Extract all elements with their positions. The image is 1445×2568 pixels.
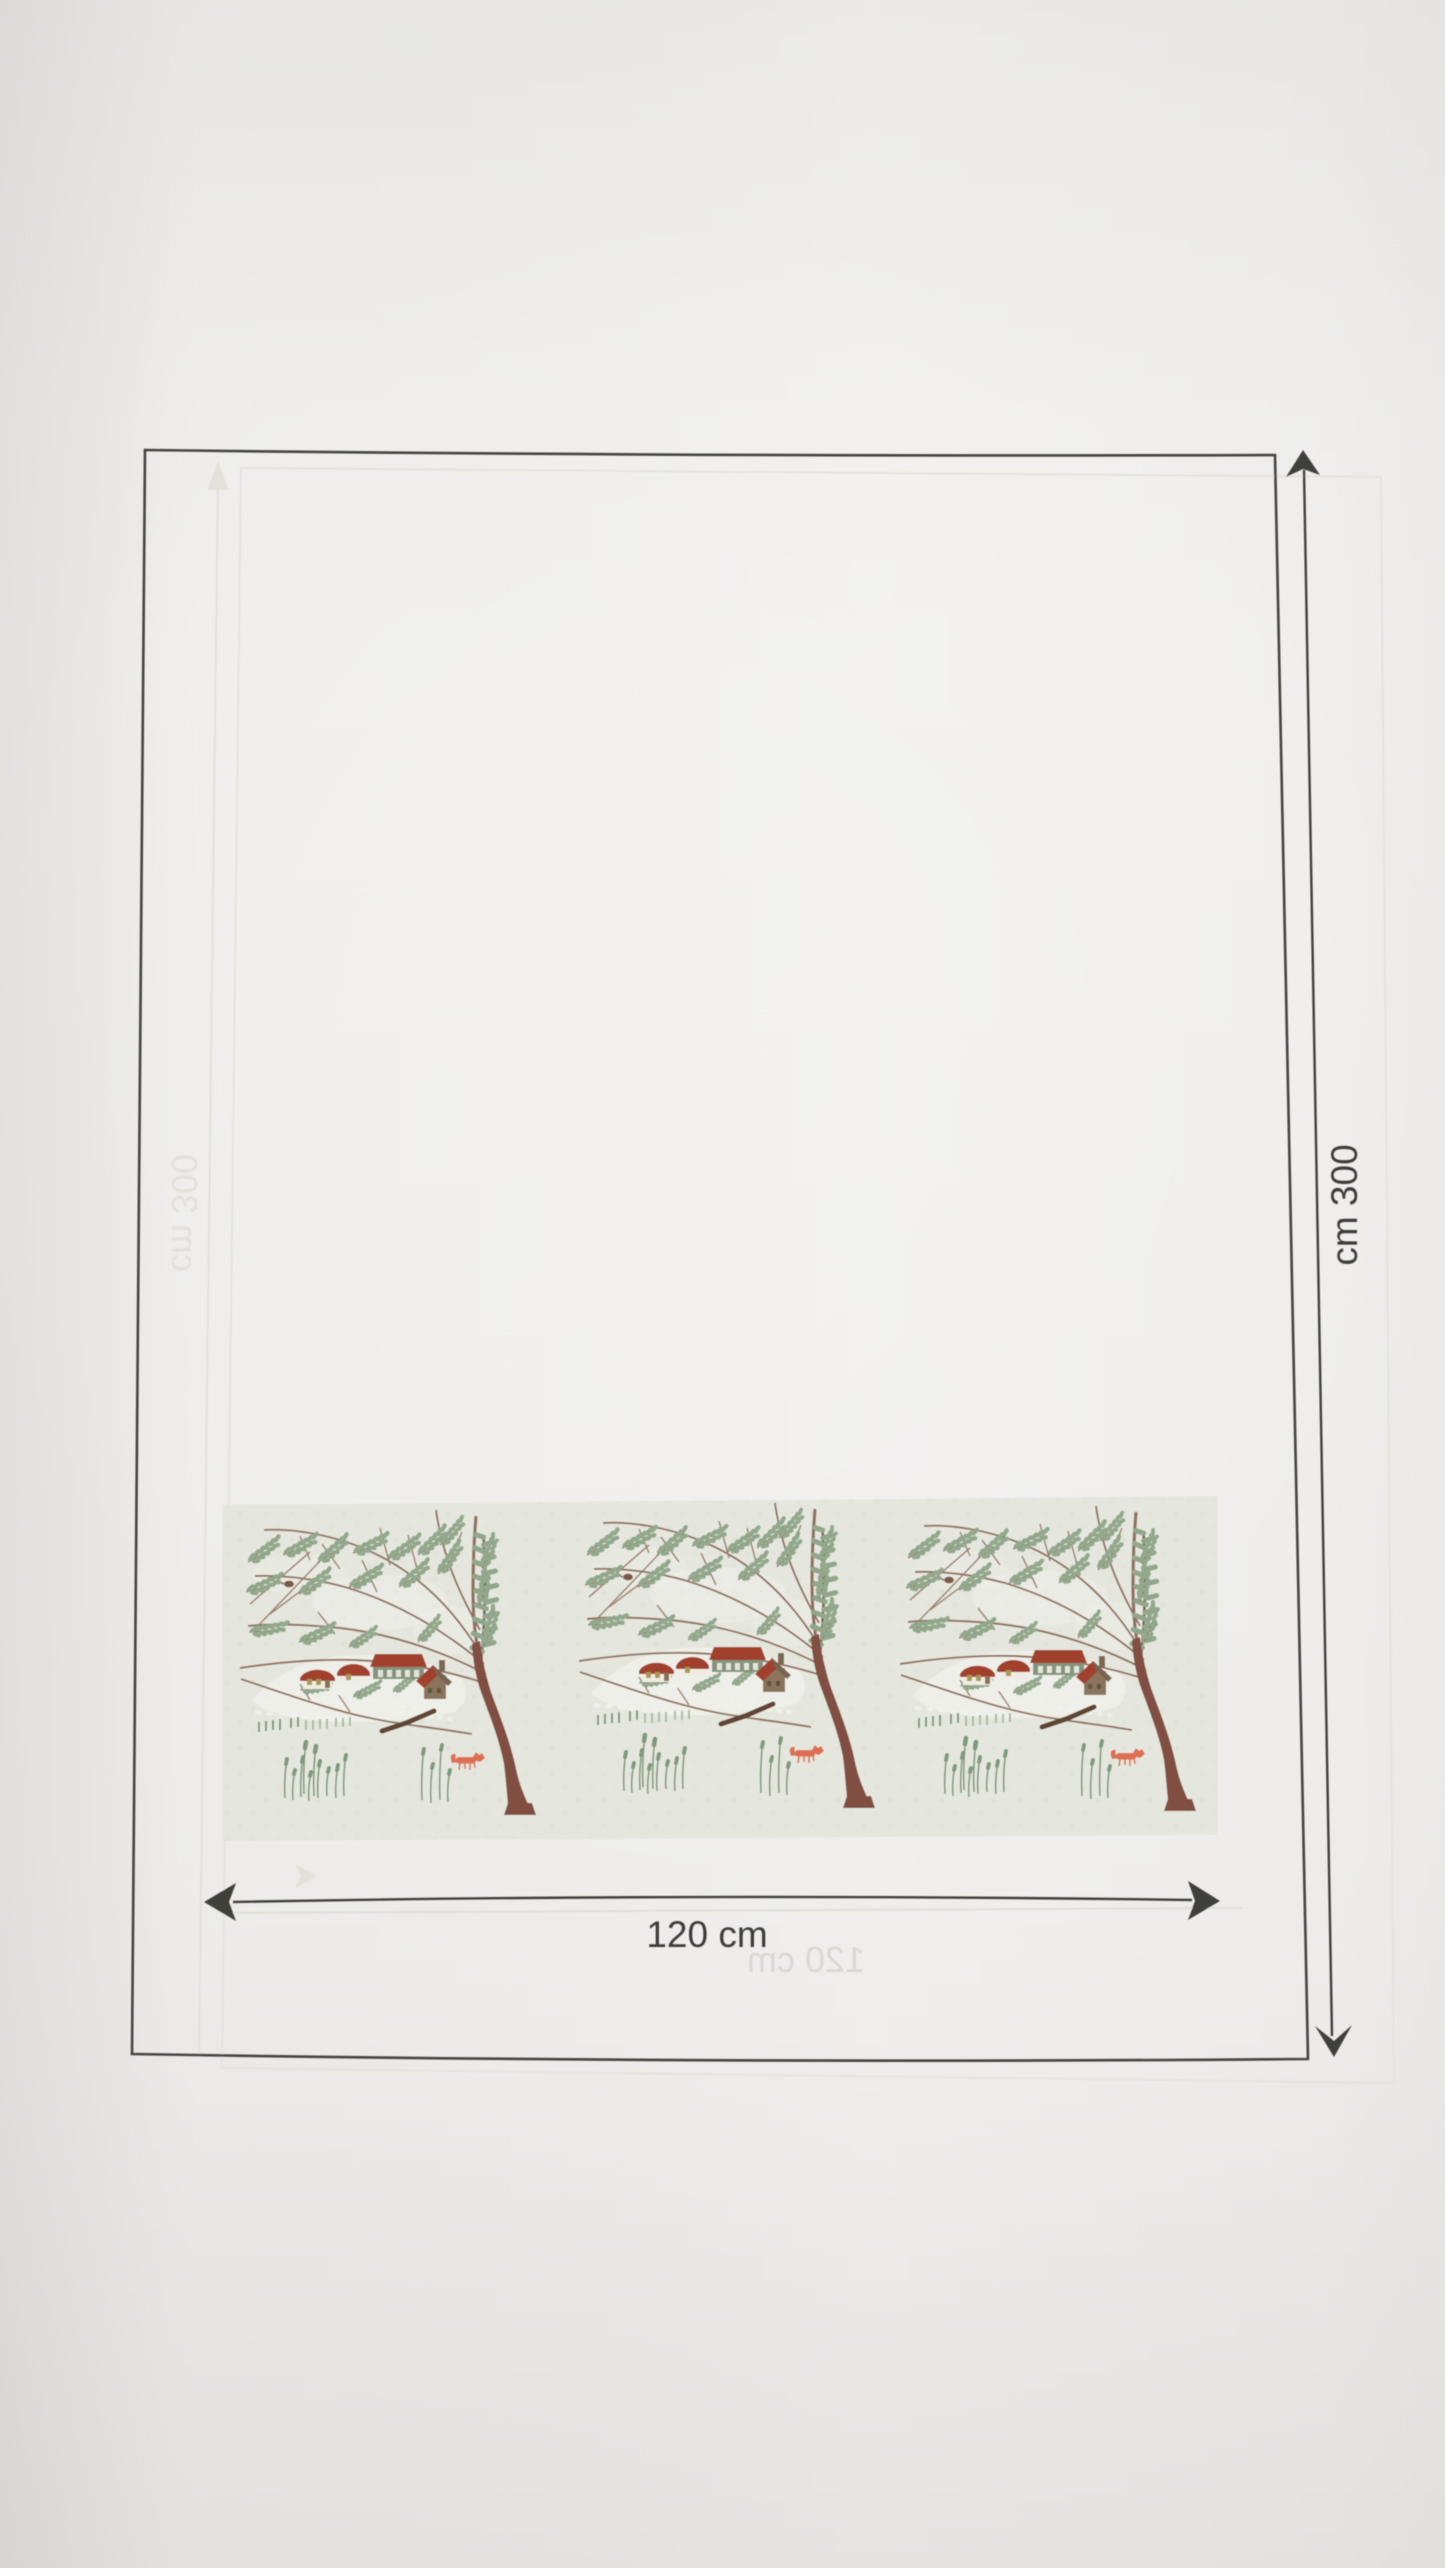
svg-text:cm 300: cm 300 (1324, 1144, 1365, 1265)
svg-text:cm 300: cm 300 (164, 1154, 205, 1272)
svg-text:120 cm: 120 cm (646, 1914, 767, 1955)
